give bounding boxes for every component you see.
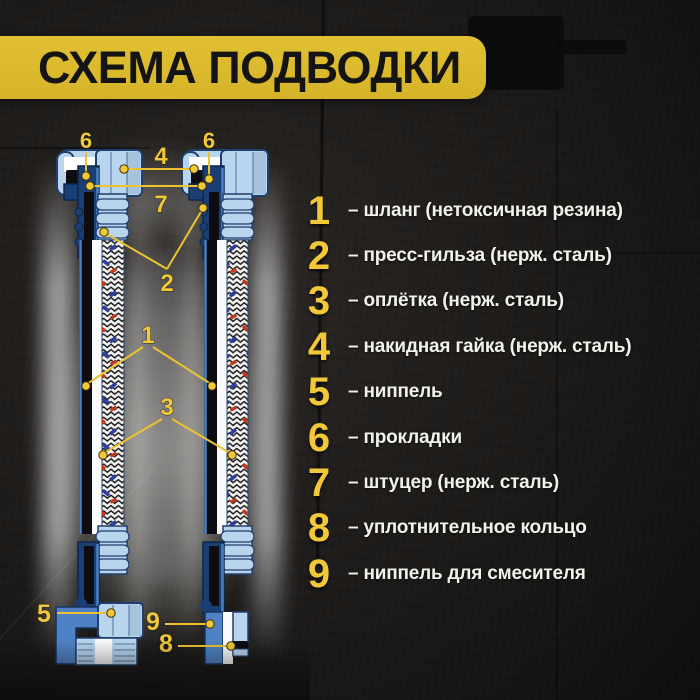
legend-item-text: – шланг (нетоксичная резина) [348,200,623,222]
callout-number: 4 [154,143,168,170]
hose-right [182,150,268,664]
callout-number: 8 [159,630,173,658]
legend-item-text: – накидная гайка (нерж. сталь) [348,336,631,358]
legend-item: 9 – ниппель для смесителя [298,551,694,596]
callout-number: 1 [141,322,154,349]
legend-item: 4 – накидная гайка (нерж. сталь) [298,324,694,369]
legend-item: 1 – шланг (нетоксичная резина) [298,188,694,233]
callout-number: 5 [37,600,51,628]
legend-item-text: – пресс-гильза (нерж. сталь) [348,245,612,267]
legend: 1 – шланг (нетоксичная резина) 2 – пресс… [298,188,694,597]
legend-item-text: – уплотнительное кольцо [348,517,587,539]
page-title: СХЕМА ПОДВОДКИ [38,42,461,94]
legend-item-number: 4 [298,327,340,367]
legend-item-text: – ниппель для смесителя [348,563,586,585]
legend-item-text: – ниппель [348,381,442,403]
legend-item-number: 9 [298,554,340,594]
callout-number: 7 [154,191,167,218]
legend-item: 8 – уплотнительное кольцо [298,506,694,551]
press-sleeve [221,194,254,240]
callout-number: 2 [160,270,173,297]
legend-item-number: 3 [298,281,340,321]
callout-number: 6 [80,128,92,153]
hose-left [56,150,143,665]
legend-item-number: 6 [298,418,340,458]
legend-item-number: 7 [298,463,340,503]
background-fixture-arm [556,40,626,54]
legend-item-text: – штуцер (нерж. сталь) [348,472,559,494]
legend-item: 5 – ниппель [298,370,694,415]
legend-item-text: – прокладки [348,427,462,449]
legend-item-number: 5 [298,372,340,412]
legend-item-number: 2 [298,236,340,276]
legend-item: 2 – пресс-гильза (нерж. сталь) [298,233,694,278]
poster: 6 6 4 7 2 1 [0,0,700,700]
legend-item: 3 – оплётка (нерж. сталь) [298,279,694,324]
callout-number: 9 [146,608,160,636]
press-sleeve-bottom [96,526,129,574]
callout-number: 3 [160,394,173,421]
nipple-thread [76,638,137,665]
callout-number: 6 [203,128,215,153]
press-sleeve-bottom [221,526,254,574]
legend-item-number: 8 [298,508,340,548]
legend-item: 6 – прокладки [298,415,694,460]
legend-item-text: – оплётка (нерж. сталь) [348,290,564,312]
hose-diagram: 6 6 4 7 2 1 [0,0,300,700]
title-banner: СХЕМА ПОДВОДКИ [0,36,486,99]
legend-item-number: 1 [298,191,340,231]
legend-item: 7 – штуцер (нерж. сталь) [298,460,694,505]
